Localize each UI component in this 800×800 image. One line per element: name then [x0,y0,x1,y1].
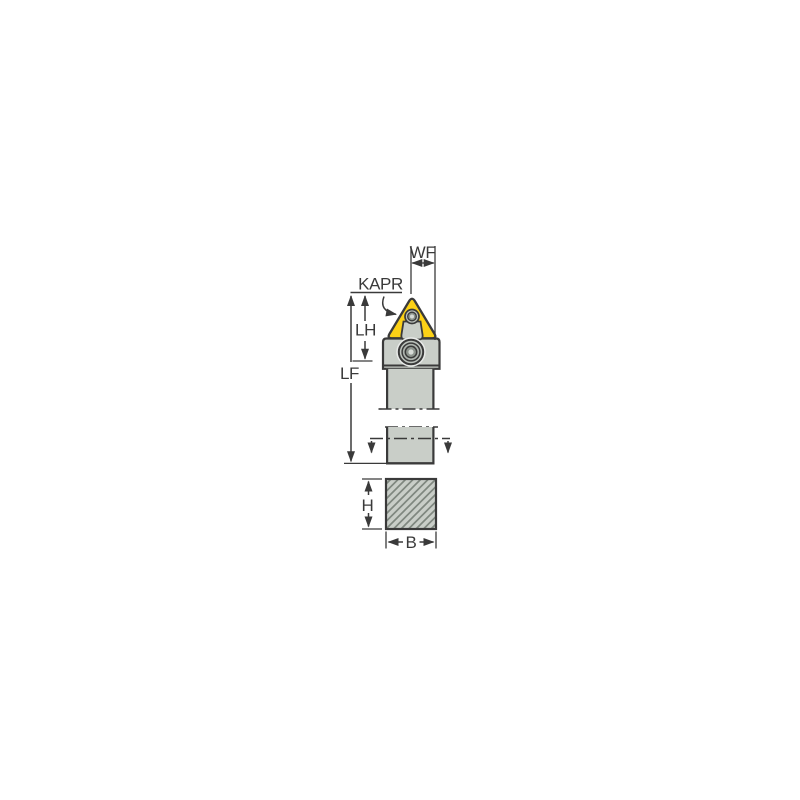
dimension-h: H [362,479,382,529]
dimension-lh: LH [353,296,376,361]
lf-label: LF [340,364,359,383]
side-view [370,299,450,464]
wf-label: WF [410,243,436,262]
cross-section-view: H B [362,479,436,552]
lh-label: LH [355,321,376,340]
b-label: B [406,533,417,552]
diagram-canvas: WF KAPR LF LH H [0,0,800,800]
kapr-angle-arrow [383,297,396,315]
clamp-screw-icon [405,310,419,324]
cross-section-hatch [386,479,436,529]
tool-shank-upper [386,369,435,409]
tool-holder-dimension-diagram: WF KAPR LF LH H [0,0,800,800]
h-label: H [362,496,374,515]
kapr-label: KAPR [358,275,403,294]
dimension-kapr: KAPR [351,275,403,315]
tool-shank-lower [386,427,435,463]
dimension-b: B [386,532,436,553]
head-screw-icon [397,338,424,365]
